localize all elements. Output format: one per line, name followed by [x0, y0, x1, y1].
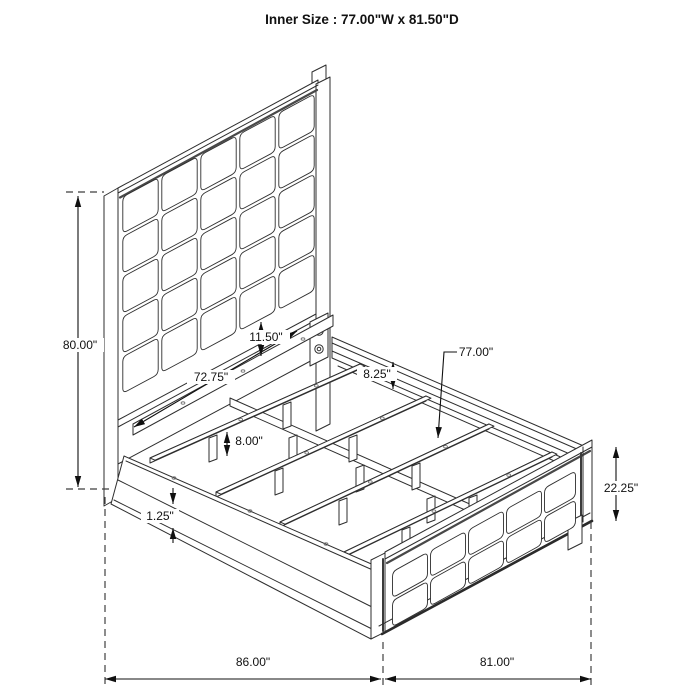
- dim-label-rail-inner-length: 72.75": [194, 370, 228, 384]
- diagram-title: Inner Size : 77.00"W x 81.50"D: [265, 12, 459, 27]
- slat-leg: [349, 435, 357, 462]
- dim-label-headboard-height: 80.00": [63, 338, 97, 352]
- slat-leg: [209, 435, 217, 462]
- slat-leg: [339, 498, 347, 525]
- dim-label-overall-width: 81.00": [480, 655, 514, 669]
- slat-leg: [275, 468, 283, 495]
- bed-drawing: [104, 65, 592, 639]
- dim-label-headboard-to-slat: 11.50": [249, 330, 282, 344]
- dim-label-footboard-height: 22.25": [604, 481, 638, 495]
- dim-label-trim-thickness: 1.25": [146, 509, 174, 523]
- dim-label-slat-leg-height: 8.00": [235, 434, 263, 448]
- headboard-left-post: [104, 188, 118, 506]
- slat-leg: [412, 463, 420, 490]
- dim-label-slat-length: 77.00": [459, 345, 493, 359]
- slat-leg: [283, 402, 291, 429]
- dim-label-overall-depth: 86.00": [236, 655, 270, 669]
- dim-label-rail-height: 8.25": [363, 367, 391, 381]
- bed-dimension-diagram: Inner Size : 77.00"W x 81.50"D: [0, 0, 700, 700]
